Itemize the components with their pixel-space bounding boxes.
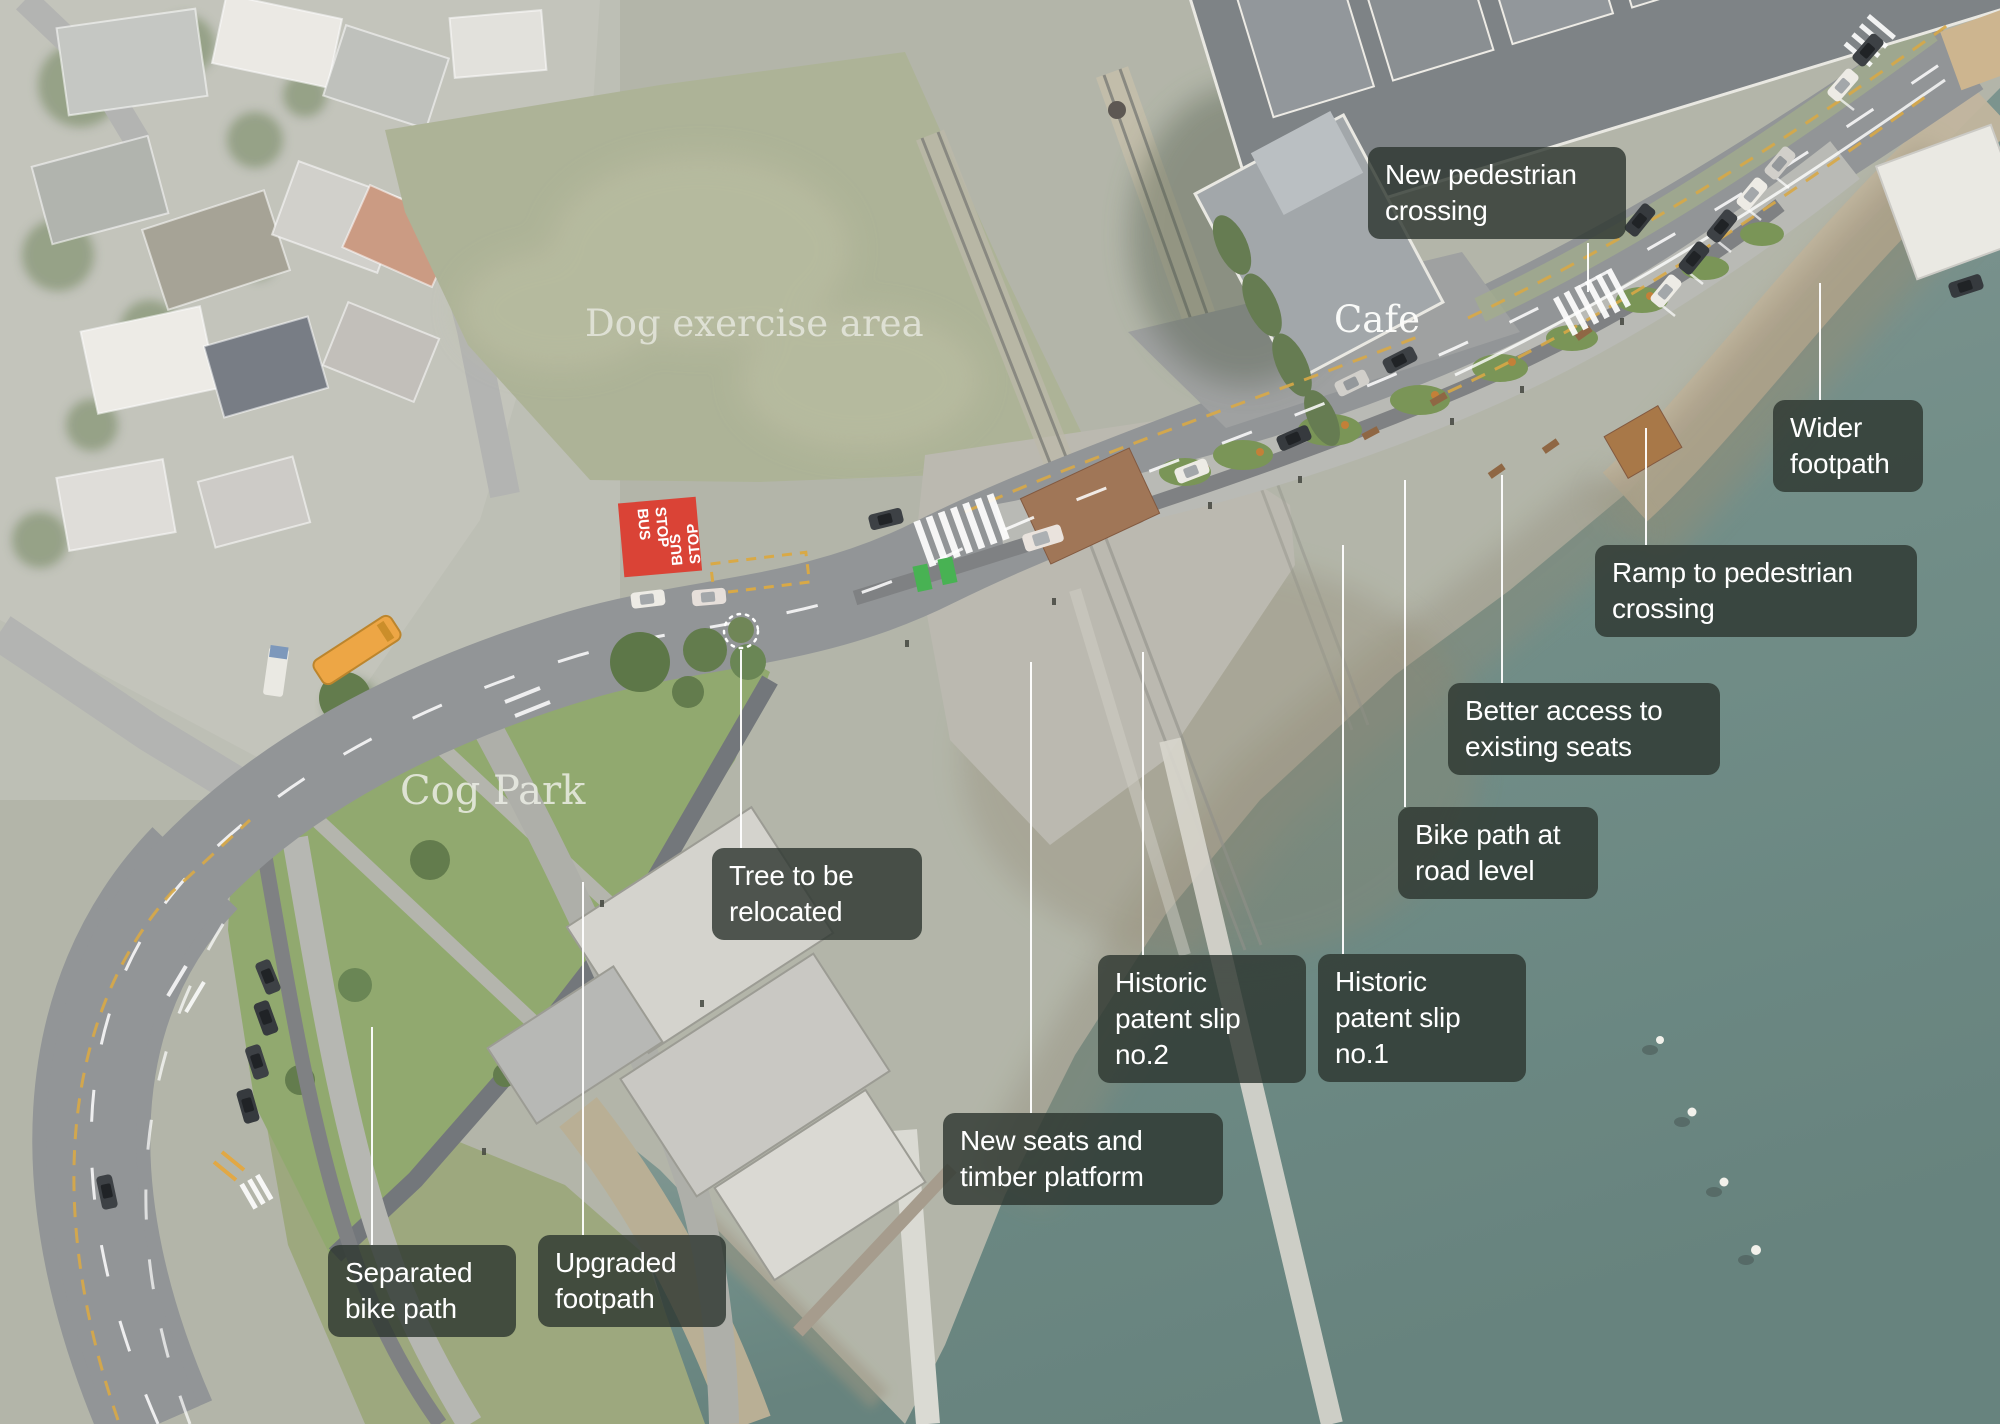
leader-upgraded-footpath [582, 882, 584, 1235]
leader-wider-footpath [1819, 283, 1821, 400]
annotation-wider-footpath: Wider footpath [1773, 400, 1923, 492]
annotation-better-access: Better access to existing seats [1448, 683, 1720, 775]
aerial-plan-canvas: BUS STOP BUS STOP [0, 0, 2000, 1424]
leader-separated-bike-path [371, 1027, 373, 1245]
annotation-layer: Dog exercise area Cog Park Cafe New pede… [0, 0, 2000, 1424]
leader-new-pedestrian-crossing [1587, 243, 1589, 292]
leader-historic-slip-2 [1142, 652, 1144, 955]
annotation-tree-to-be-relocated: Tree to be relocated [712, 848, 922, 940]
place-label-cog-park: Cog Park [400, 768, 585, 814]
annotation-new-pedestrian-crossing: New pedestrian crossing [1368, 147, 1626, 239]
leader-tree-to-be-relocated [740, 650, 742, 848]
annotation-upgraded-footpath: Upgraded footpath [538, 1235, 726, 1327]
annotation-historic-slip-2: Historic patent slip no.2 [1098, 955, 1306, 1083]
annotation-new-seats: New seats and timber platform [943, 1113, 1223, 1205]
leader-bike-path-road-level [1404, 480, 1406, 807]
leader-new-seats [1030, 662, 1032, 1113]
place-label-dog-exercise-area: Dog exercise area [585, 302, 924, 345]
place-label-cafe: Cafe [1334, 298, 1420, 341]
leader-historic-slip-1 [1342, 545, 1344, 954]
leader-ramp-to-pedestrian-crossing [1645, 428, 1647, 545]
leader-better-access [1501, 475, 1503, 683]
annotation-bike-path-road-level: Bike path at road level [1398, 807, 1598, 899]
annotation-historic-slip-1: Historic patent slip no.1 [1318, 954, 1526, 1082]
annotation-separated-bike-path: Separated bike path [328, 1245, 516, 1337]
annotation-ramp-to-pedestrian-crossing: Ramp to pedestrian crossing [1595, 545, 1917, 637]
